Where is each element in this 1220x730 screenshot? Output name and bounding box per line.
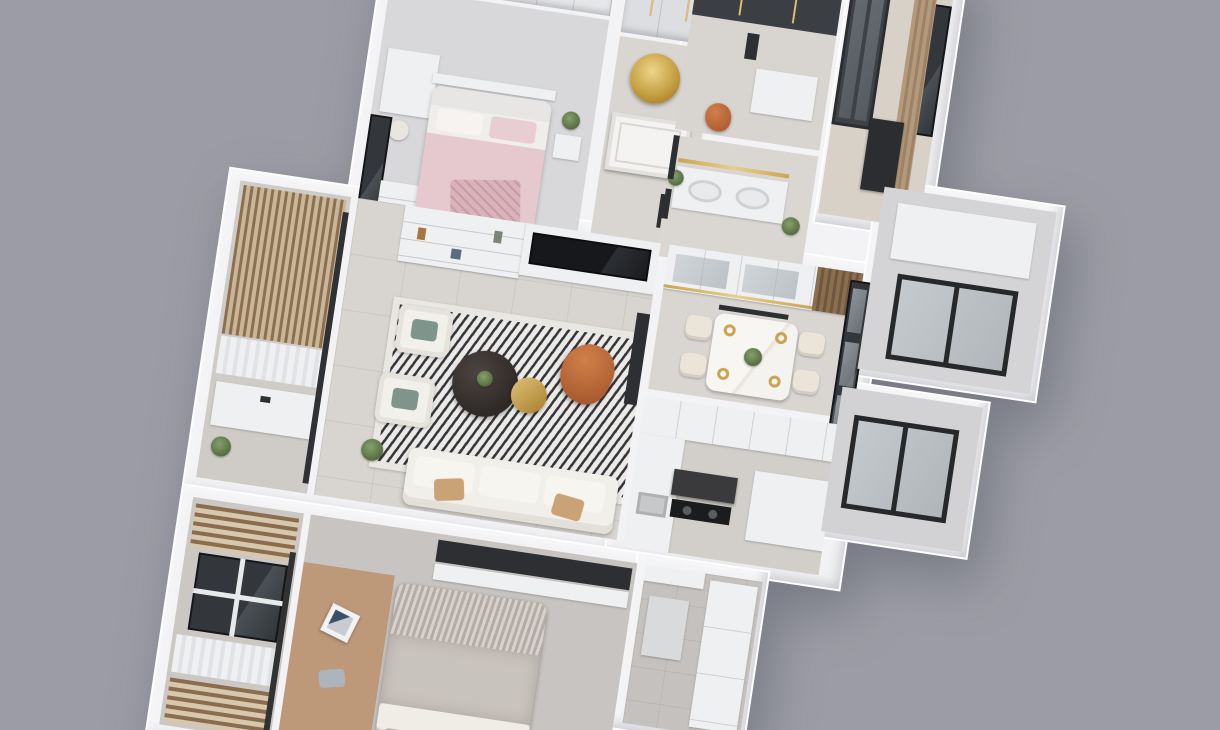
kitchen-sink [636,492,669,518]
tan-pillow [434,478,465,501]
gold-dome-pendant [627,50,684,107]
dining-chair [684,314,713,342]
dining-chair [678,352,707,380]
room-dining [648,245,863,418]
master-bed [368,582,548,730]
study-desk [750,68,818,121]
cabinet-glass [672,254,730,290]
bed-pillow [435,108,484,137]
table-centerpiece [743,347,763,367]
cabinet-glass [742,264,800,300]
gold-place-setting [723,324,737,338]
room-balcony-lower-right [821,387,983,552]
room-balcony-upper-right [857,187,1056,395]
bed-pillow-pink [489,116,538,145]
shelf-gold-trim [738,0,749,15]
room-living [314,198,661,540]
armchair [394,303,455,358]
wood-venetian-blinds [164,677,273,730]
artwork-image [327,610,354,637]
plant [781,216,801,236]
tv-screen [528,232,651,281]
burner [682,505,692,515]
room-kitchen [623,396,841,576]
black-framed-railing [841,415,960,524]
kids-nightstand [552,134,581,162]
gold-place-setting [716,367,730,381]
shelf-gold-trim [792,0,803,23]
gold-place-setting [768,375,782,389]
railing-post [943,282,961,368]
floorplan-scene [0,0,1220,730]
plant [561,110,581,130]
vanity-sink [687,178,724,205]
tilted-artwork [320,603,360,643]
extractor-hood [671,469,738,504]
faucet [260,396,271,403]
room-study [675,0,847,151]
railing-post [890,422,909,516]
teal-pillow [410,318,439,342]
vanity-sink [734,185,771,212]
study-dark-shelving [692,0,847,36]
partition-pane [839,342,859,388]
book-decor [450,248,461,259]
cooktop [670,499,732,526]
wardrobe-gold-trim [649,0,661,16]
balcony-ledge [890,203,1037,279]
teal-pillow [391,387,420,411]
master-balcony-window [188,552,289,642]
floor-cushion [318,669,345,689]
black-framed-railing [885,274,1018,377]
book-decor [493,231,503,244]
armchair [373,371,436,429]
orange-task-chair [703,102,733,134]
book-decor [417,227,427,240]
sheer-curtain [171,634,279,687]
burner [708,509,718,519]
room-walk-in-closet [623,565,763,730]
storage-box [641,595,689,660]
kitchen-island [745,471,832,552]
dining-chair [797,331,826,359]
laundry-counter [210,381,315,439]
table-centerpiece [476,370,494,388]
plant [210,435,233,458]
gold-place-setting [774,331,788,345]
apartment-plan [0,0,1220,730]
sofa-cushion [478,465,542,504]
dining-chair [791,368,820,396]
dining-table [705,312,800,402]
statue-decor [744,33,760,60]
